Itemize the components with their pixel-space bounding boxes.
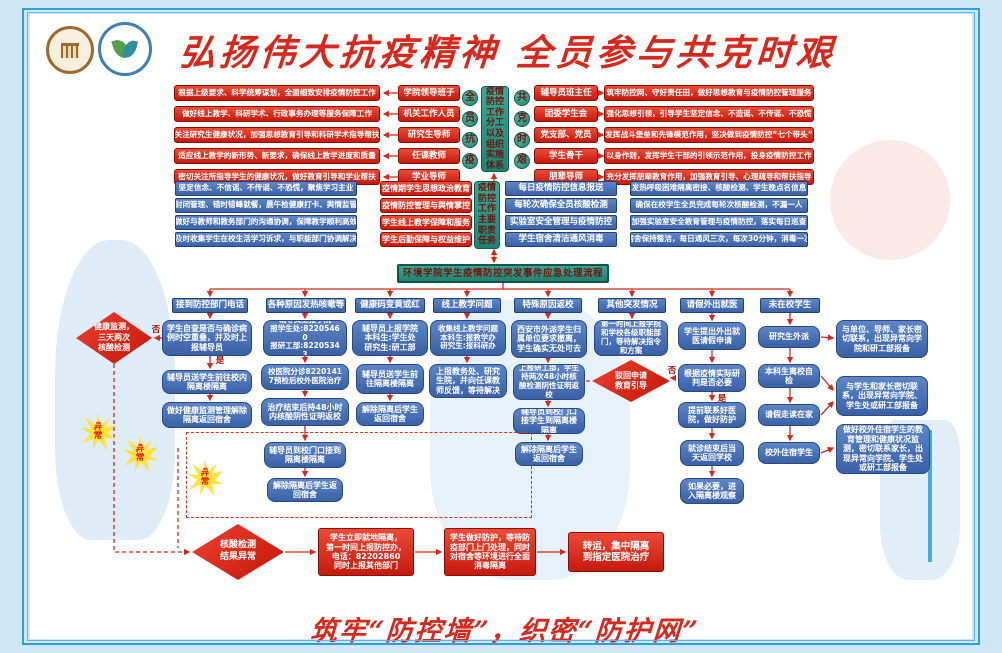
flow-grad-dispatch-desc-8: 与单位、导师、家长密切联系，出现异常向学院和研工部报备 <box>836 320 928 358</box>
diagram-nodes-layer: 根据上级要求、科学统筹谋划，全面细致安排疫情防控工作做好线上教学、科研学术、行政… <box>0 0 1002 653</box>
flow-report-academic-4: 上报教务处、研究生院，并向任课教师反馈，等待解决 <box>429 364 507 398</box>
duty-party: 发挥战斗堡垒和先锋模范作用，坚决做到疫情防控“七个带头” <box>604 127 814 143</box>
header-special-return: 特殊原因返校 <box>514 298 582 313</box>
task-dorm: 学生宿舍清洁通风消毒 <box>505 232 617 247</box>
flow-off-campus-8: 校外住宿学生 <box>758 442 820 464</box>
header-online-teaching: 线上教学问题 <box>433 298 501 313</box>
role-course-teacher: 任课教师 <box>398 148 460 164</box>
star-abnormal-2: 异常 <box>122 436 158 472</box>
header-leave-medical: 请假外出就医 <box>680 298 744 313</box>
star-abnormal-1: 异常 <box>80 414 116 450</box>
task-logistics: 学生后勤保障与权益维护 <box>380 232 472 247</box>
role-cadre: 学生骨干 <box>534 148 598 164</box>
main-duties: 疫情 防控 工作 主要 职责 任务 <box>474 181 500 249</box>
task-lab-desc: 加强实验室安全教育管理与疫情防控，落实每日巡查 <box>630 215 808 230</box>
flow-monitor-release-1: 做好健康监测管理解除隔离返回宿舍 <box>162 402 252 428</box>
role-party: 党支部、党员 <box>534 127 598 143</box>
action-immediate-isolation: 学生立即就地隔离， 第一时间上报防控办， 电话：82202860 同时上报其他部… <box>318 528 414 576</box>
duty-cadre: 以身作则，发挥学生干部的引领示范作用，投身疫情防控工作 <box>604 148 814 164</box>
tag-yes-1: 是 <box>214 356 226 366</box>
flow-report-college-3: 辅导员上报学院 本科生:学生处 研究生:研工部 <box>352 320 428 356</box>
flow-off-campus-desc-8: 做好校外住宿学生的教育管理和健康状况监测，密切联系家长，出现异常向学院、学生处或… <box>836 424 930 474</box>
header-other-emergency: 其他突发情况 <box>598 298 666 313</box>
flow-release-3: 解除隔离后学生返回宿舍 <box>356 402 424 426</box>
epidemic-prevention-poster: 弘扬伟大抗疫精神 全员参与共克时艰 筑牢“防控墙”，织密“防护网” 根据上级要求… <box>0 0 1002 653</box>
flow-report-college-2: 辅导员上报学院 报学生处:82205460 报研工部:82205343 <box>263 320 347 356</box>
duty-office: 做好线上教学、科研学术、行政事务办理等服务保障工作 <box>174 106 380 122</box>
role-leadership: 学院领导班子 <box>398 85 460 101</box>
header-fever: 各种原因发热咳嗽等 <box>266 298 346 313</box>
flow-contact-hospital-7: 提前联系好医院，做好防护 <box>678 402 746 428</box>
flow-home-stay-8: 请假走读在家 <box>758 404 820 426</box>
dashed-zone <box>186 432 532 518</box>
circle-yuan: 员 <box>462 111 478 127</box>
task-nat-desc: 确保在校学生全员完成每轮次核酸检测，不漏一人 <box>630 198 808 213</box>
header-control-call: 接到防控部门电话 <box>172 298 248 313</box>
flow-escort-isolation-3: 辅导员送学生前往隔离楼隔离 <box>356 364 424 394</box>
circle-kang: 抗 <box>462 132 478 148</box>
flow-first-report-6: 第一时间上报学院和学校各级职能部门，等待解决指令和方案 <box>594 320 668 356</box>
tag-no-7: 否 <box>666 366 678 376</box>
task-dorm-desc: 宿舍保持整洁，每日通风三次，每次30分钟，消毒一次 <box>630 232 808 247</box>
circle-shi: 时 <box>514 132 530 148</box>
circle-jian: 艰 <box>514 153 530 169</box>
process-bar: 环境学院学生疫情防控突发事件应急处理流程 <box>397 264 609 283</box>
role-league: 团委学生会 <box>534 106 598 122</box>
diamond-nat-abnormal: 核酸检测 结果异常 <box>192 524 284 580</box>
flow-observe-7: 如果必要，进入隔离楼观察 <box>680 478 744 504</box>
org-system: 疫情 防控 工作 分工 以及 组织 实施 体系 <box>481 86 509 172</box>
flow-report-ygb-5: 上报研工部，学生持两次48小时核酸检测阴性证明返校 <box>513 364 585 400</box>
task-mgmt: 疫情防控管理与舆情掌控 <box>380 198 472 213</box>
duty-counselor: 筑牢防控网、守好责任田，做好思想教育与疫情防控管理服务 <box>604 85 814 101</box>
role-office: 机关工作人员 <box>398 106 460 122</box>
task-teaching: 学生线上教学保障和服务 <box>380 215 472 230</box>
role-counselor: 辅导员班主任 <box>534 85 598 101</box>
header-health-code: 健康码变黄或红 <box>355 298 425 313</box>
action-wait-epidemic-dept: 学生做好防护，等待防疫部门上门处理，同时对宿舍等环境进行全面消毒隔离 <box>444 528 536 576</box>
task-nat: 每轮次确保全员核酸检测 <box>505 198 617 213</box>
tag-no-1: 否 <box>150 325 162 335</box>
action-transfer-hospital: 转运，集中隔离 到指定医院治疗 <box>568 532 664 572</box>
flow-grad-dispatch-8: 研究生外派 <box>758 326 820 348</box>
flow-leave-apply-7: 学生提出外出就医请假申请 <box>678 322 746 350</box>
role-grad-supervisor: 研究生导师 <box>398 127 460 143</box>
circle-ke: 克 <box>514 111 530 127</box>
circle-quan: 全 <box>462 90 478 106</box>
task-mgmt-desc: 封闭管理、错时错峰就餐，晨午检健康打卡、舆情监管 <box>175 198 357 213</box>
flow-gate-isolation-5: 辅导员到校门口接学生到隔离楼隔离 <box>513 408 585 434</box>
flow-same-day-return-7: 就诊结束后当天返回学校 <box>680 440 744 466</box>
duty-league: 强化思想引领，引导学生坚定信念、不造谣、不传谣、不恐慌 <box>604 106 814 122</box>
task-lab: 实验室安全管理与疫情防控 <box>505 215 617 230</box>
circle-yi: 疫 <box>462 153 478 169</box>
task-logistics-desc: 及时收集学生在校生活学习诉求，与职能部门协调解决 <box>175 232 357 247</box>
duty-grad-supervisor: 关注研究生健康状况，加强思想教育引导和科研学术指导帮扶 <box>174 127 380 143</box>
duty-course-teacher: 适应线上教学的新形势、新要求，确保线上教学进度和质量 <box>174 148 380 164</box>
duty-leadership: 根据上级要求、科学统筹谋划，全面细致安排疫情防控工作 <box>174 85 380 101</box>
task-ideology: 疫情期学生思想政治教育 <box>380 181 472 196</box>
header-off-campus: 未在校学生 <box>760 298 820 313</box>
circle-gong: 共 <box>514 90 530 106</box>
flow-contact-desc-8: 与学生和家长密切联系，出现异常向学院、学生处或研工部报备 <box>836 376 928 416</box>
flow-self-check: 学生自查是否与确诊病例时空重叠，并及时上报辅导员 <box>162 320 252 356</box>
task-teaching-desc: 做好与教师和教务部门的沟通协调，保障教学顺利高效 <box>175 215 357 230</box>
flow-undergrad-away-8: 本科生离校自检 <box>758 364 820 388</box>
task-ideology-desc: 坚定信念、不信谣、不传谣、不恐慌，聚焦学习主业 <box>175 181 357 196</box>
flow-escort-isolation-1: 辅导员送学生前往校内隔离楼隔离 <box>162 370 252 394</box>
flow-judge-necessity-7: 根据疫情实际研判是否必要 <box>678 364 746 392</box>
flow-collect-issues-4: 收集线上教学问题 本科生:报教学办 研究生:报科研办 <box>430 320 506 356</box>
task-report-desc: 发热呼吸困难隔离密接、核酸检测、学生晚点名信息 <box>630 181 808 196</box>
diamond-reject-apply: 驳回申请 教育引导 <box>592 360 670 402</box>
flow-xian-dispatch-5: 西安市外派学生归属单位要求撤离，学生确实无处可去 <box>511 320 587 358</box>
diamond-health-monitor: 健康监测， 三天两次 核酸检测 <box>76 312 152 364</box>
flow-clinic-triage-2: 校医院分诊82201417预检后校外医院治疗 <box>261 364 349 390</box>
task-report: 每日疫情防控信息报送 <box>505 181 617 196</box>
flow-treat-48h-2: 治疗结束后持48小时内核酸阴性证明返校 <box>261 398 349 426</box>
